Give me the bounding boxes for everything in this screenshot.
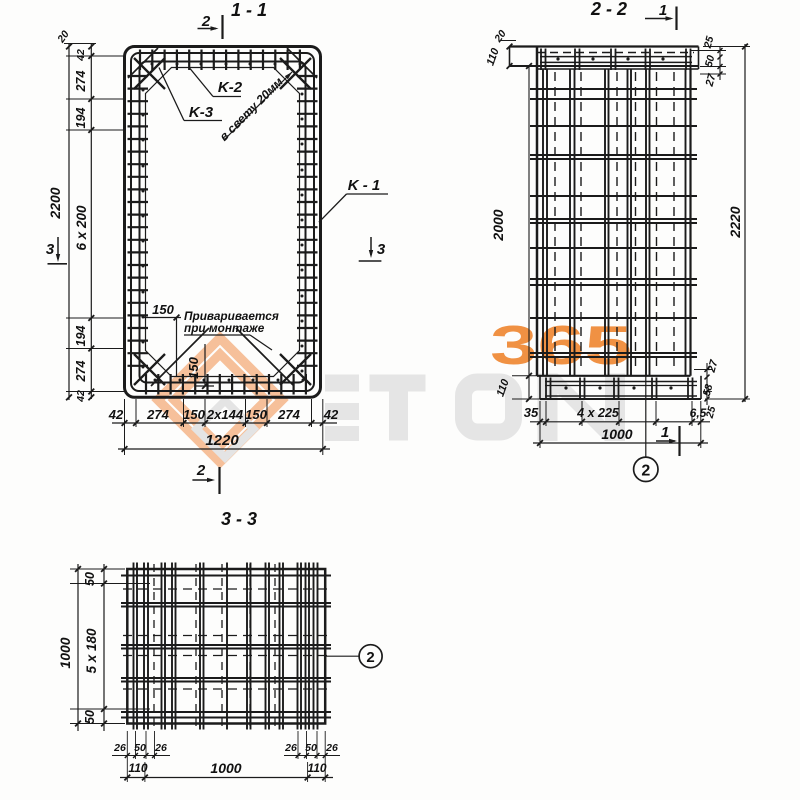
svg-text:50: 50 [83,572,97,586]
svg-text:150: 150 [186,356,201,378]
svg-text:2000: 2000 [490,209,506,241]
svg-text:274: 274 [277,407,300,422]
svg-text:1000: 1000 [210,760,241,776]
svg-text:42: 42 [75,49,87,62]
svg-text:274: 274 [146,407,169,422]
svg-text:150: 150 [245,407,267,422]
svg-text:3: 3 [377,241,386,258]
svg-text:110: 110 [307,761,326,775]
svg-text:50: 50 [134,742,146,754]
svg-text:110: 110 [128,761,147,775]
svg-text:42: 42 [323,407,339,422]
svg-text:1 - 1: 1 - 1 [231,0,267,20]
svg-text:3: 3 [46,241,55,258]
svg-text:194: 194 [74,326,88,347]
svg-text:50: 50 [305,742,317,754]
svg-text:42: 42 [75,390,87,403]
svg-text:6 x 200: 6 x 200 [74,205,89,251]
svg-text:2: 2 [196,462,206,479]
svg-text:1220: 1220 [205,432,239,449]
svg-text:2 - 2: 2 - 2 [590,0,627,19]
svg-text:274: 274 [74,361,88,383]
svg-text:150: 150 [152,302,174,317]
svg-text:K-2: K-2 [218,79,243,96]
svg-text:2: 2 [201,13,211,30]
svg-text:5 x 180: 5 x 180 [84,628,99,674]
svg-text:K-3: K-3 [189,104,214,121]
svg-text:2: 2 [641,462,650,479]
svg-text:365: 365 [490,314,632,376]
svg-text:K - 1: K - 1 [348,177,381,194]
svg-text:35: 35 [524,405,539,420]
svg-text:4 x 225: 4 x 225 [576,406,620,420]
svg-text:1000: 1000 [57,637,73,668]
svg-text:50: 50 [83,710,97,724]
svg-text:194: 194 [74,108,88,129]
svg-text:274: 274 [74,71,88,93]
svg-text:26: 26 [284,742,297,754]
svg-text:26: 26 [113,742,126,754]
svg-text:3 - 3: 3 - 3 [221,509,257,529]
svg-text:6,5: 6,5 [690,406,707,420]
svg-text:26: 26 [325,742,338,754]
svg-text:1000: 1000 [601,426,632,442]
svg-text:при монтаже: при монтаже [184,321,265,335]
svg-text:26: 26 [154,742,167,754]
svg-text:1: 1 [661,424,669,441]
svg-text:2220: 2220 [727,206,743,238]
svg-text:42: 42 [108,407,124,422]
svg-text:2200: 2200 [47,187,63,219]
svg-text:150: 150 [183,407,205,422]
svg-text:2x144: 2x144 [206,407,244,422]
svg-text:2: 2 [366,649,374,666]
